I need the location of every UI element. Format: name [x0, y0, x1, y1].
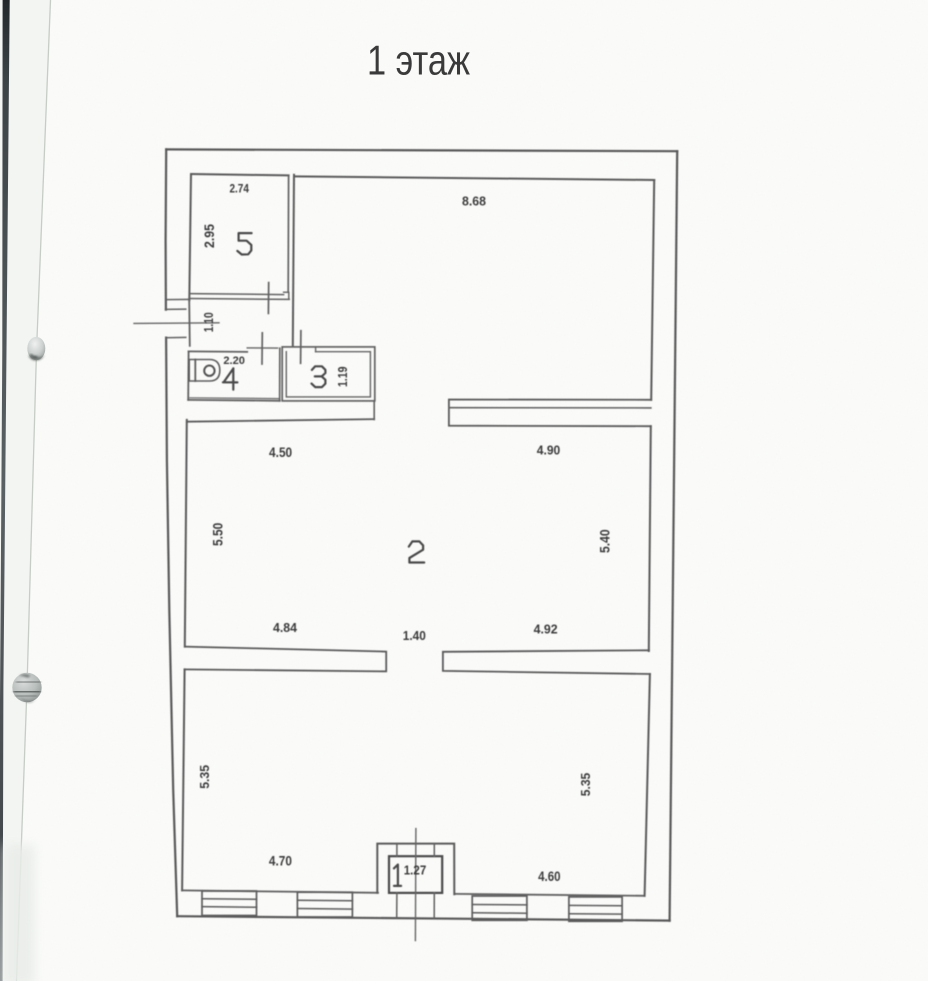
svg-text:1.40: 1.40 [403, 628, 426, 643]
svg-text:4.92: 4.92 [534, 622, 558, 637]
svg-text:2.74: 2.74 [229, 181, 249, 195]
svg-text:5.35: 5.35 [197, 765, 212, 789]
svg-text:5.50: 5.50 [210, 523, 225, 546]
svg-text:1.10: 1.10 [202, 312, 216, 332]
svg-text:4.60: 4.60 [538, 869, 560, 884]
svg-text:5.35: 5.35 [578, 773, 593, 796]
svg-text:4.90: 4.90 [537, 443, 561, 458]
svg-text:1.19: 1.19 [336, 367, 350, 388]
svg-text:2.95: 2.95 [202, 224, 217, 248]
svg-text:4.84: 4.84 [273, 620, 298, 635]
svg-text:4.50: 4.50 [269, 444, 292, 460]
svg-text:2.20: 2.20 [223, 355, 245, 367]
svg-text:1 этаж: 1 этаж [367, 37, 470, 84]
svg-text:1.27: 1.27 [404, 862, 427, 877]
svg-text:5.40: 5.40 [598, 529, 613, 553]
svg-text:8.68: 8.68 [462, 194, 486, 209]
svg-text:4.70: 4.70 [269, 854, 292, 869]
